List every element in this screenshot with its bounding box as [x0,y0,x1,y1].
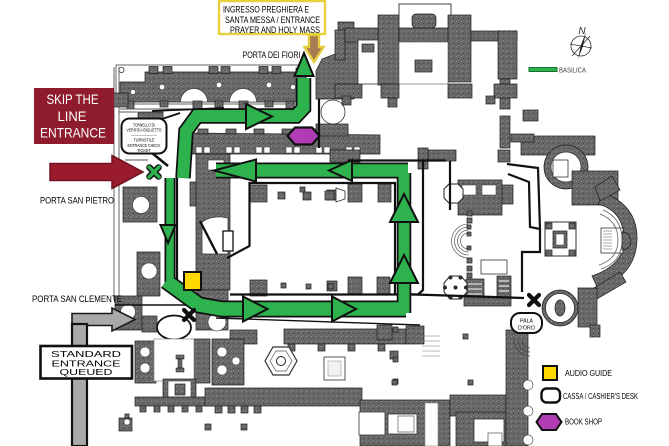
svg-text:VERIFICA BIGLIETTO: VERIFICA BIGLIETTO [127,128,162,133]
svg-text:LINE: LINE [58,108,87,124]
svg-text:PORTA SAN PIETRO: PORTA SAN PIETRO [40,196,114,206]
svg-text:BASILICA: BASILICA [559,66,586,75]
svg-text:ENTRANCE: ENTRANCE [40,125,106,141]
svg-text:D'ORO: D'ORO [518,326,536,332]
svg-text:PRAYER AND HOLY MASS: PRAYER AND HOLY MASS [230,25,320,35]
svg-text:SKIP THE: SKIP THE [47,91,99,107]
svg-text:PORTA SAN CLEMENTE: PORTA SAN CLEMENTE [32,294,122,304]
svg-text:TURNSTILE: TURNSTILE [134,138,155,143]
svg-text:AUDIO GUIDE: AUDIO GUIDE [565,368,612,378]
svg-text:SANTA MESSA / ENTRANCE: SANTA MESSA / ENTRANCE [225,15,320,25]
svg-text:BOOK SHOP: BOOK SHOP [565,417,602,427]
svg-text:QUEUED: QUEUED [60,367,113,377]
svg-text:PALA: PALA [520,319,533,325]
svg-text:INGRESSO PREGHIERA E: INGRESSO PREGHIERA E [223,5,309,15]
svg-text:N: N [578,26,586,37]
svg-text:PORTA DEI FIORI: PORTA DEI FIORI [243,50,301,60]
svg-text:CASSA / CASHIER'S DESK: CASSA / CASHIER'S DESK [563,392,638,401]
svg-text:TICKET: TICKET [137,148,151,153]
